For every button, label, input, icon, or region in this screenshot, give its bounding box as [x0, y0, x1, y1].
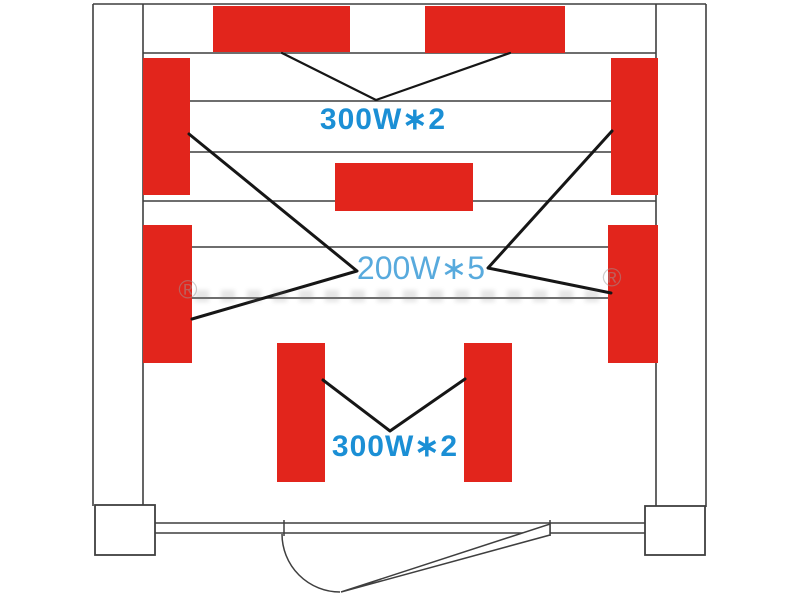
sauna-heater-layout-diagram: ® ® 300W∗2 200W∗5 300W∗2: [0, 0, 800, 600]
heater-panels: [143, 6, 658, 482]
heater-center: [335, 163, 473, 211]
heater-bench-right: [464, 343, 512, 482]
corner-posts: [95, 505, 705, 555]
bottom-wall: [155, 520, 645, 536]
post-bottom-left: [95, 505, 155, 555]
registered-trademark-icon: ®: [602, 263, 621, 294]
heater-top-right: [425, 6, 565, 53]
heater-right-lower: [608, 225, 658, 363]
label-side-heaters-wattage: 200W∗5: [357, 249, 485, 287]
watermark-text-smudge: [195, 290, 605, 302]
heater-top-left: [213, 6, 350, 52]
leader-bench-heaters: [323, 379, 465, 431]
door-leaf: [341, 524, 550, 592]
label-top-heaters-wattage: 300W∗2: [320, 102, 446, 137]
registered-trademark-icon: ®: [178, 275, 197, 306]
leader-top-heaters: [282, 53, 510, 100]
door: [282, 524, 550, 592]
post-bottom-right: [645, 506, 705, 555]
leader-right-heaters: [488, 131, 612, 293]
heater-bench-left: [277, 343, 325, 482]
door-swing-arc: [282, 534, 340, 592]
label-bench-heaters-wattage: 300W∗2: [332, 429, 458, 464]
heater-right-upper: [611, 58, 658, 195]
heater-left-upper: [143, 58, 190, 195]
